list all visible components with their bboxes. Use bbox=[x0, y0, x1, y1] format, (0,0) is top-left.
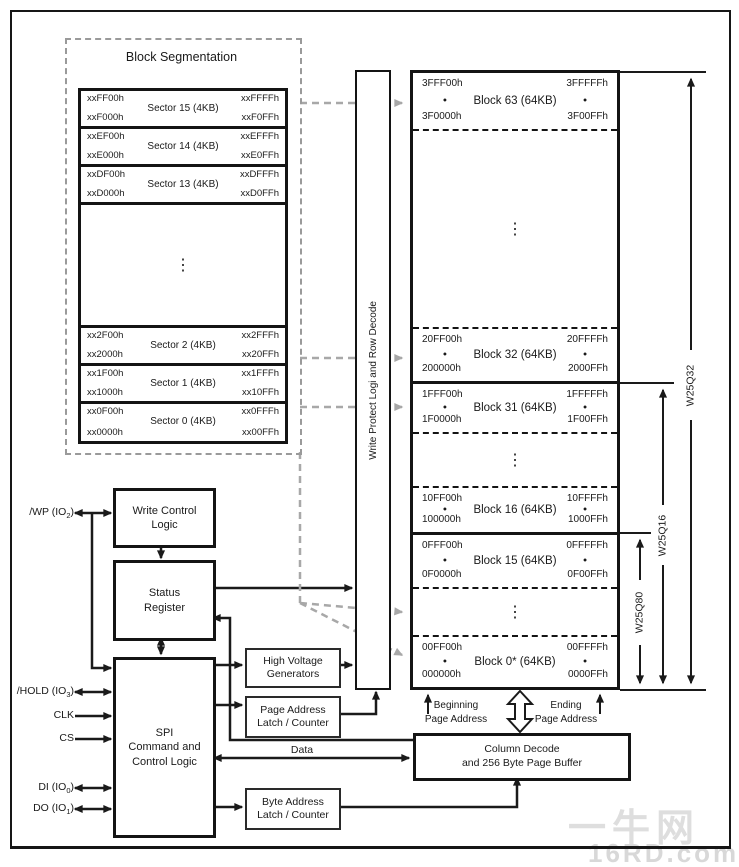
sector-row-14: xxEF00h xxEFFFh Sector 14 (4KB) xxE000h … bbox=[81, 129, 285, 167]
sector-row-15: xxFF00h xxFFFFh Sector 15 (4KB) xxF000h … bbox=[81, 91, 285, 129]
page-ellipsis-dot: • bbox=[583, 554, 587, 566]
array-ellipsis: ⋮ bbox=[413, 589, 617, 637]
memory-array: 3FFF00h 3FFFFFh Block 63 (64KB) • • 3F00… bbox=[410, 70, 620, 690]
page-ellipsis-dot: • bbox=[443, 348, 447, 360]
block-addr: 000000h bbox=[422, 669, 461, 680]
sector-addr: xx00FFh bbox=[242, 427, 279, 438]
block-addr: 10FF00h bbox=[422, 493, 462, 504]
ending-page-address-label: Ending Page Address bbox=[525, 699, 607, 726]
block-addr: 0FFF00h bbox=[422, 540, 463, 551]
hold-pin-label: /HOLD (IO3) bbox=[16, 685, 74, 699]
sector-row-13: xxDF00h xxDFFFh Sector 13 (4KB) xxD000h … bbox=[81, 167, 285, 205]
page-ellipsis-dot: • bbox=[583, 94, 587, 106]
page-address-latch-box: Page Address Latch / Counter bbox=[245, 696, 341, 738]
block-row-31: 1FFF00h 1FFFFFh Block 31 (64KB) • • 1F00… bbox=[413, 384, 617, 434]
sector-row-1: xx1F00h xx1FFFh Sector 1 (4KB) xx1000h x… bbox=[81, 366, 285, 404]
w25q16-range-label: W25Q16 bbox=[657, 506, 670, 566]
block-addr: 1F0000h bbox=[422, 414, 461, 425]
block-addr: 20FFFFh bbox=[567, 334, 608, 345]
block-addr: 2000FFh bbox=[568, 363, 608, 374]
page-ellipsis-dot: • bbox=[583, 401, 587, 413]
sector-addr: xxD000h bbox=[87, 188, 125, 199]
page-ellipsis-dot: • bbox=[443, 94, 447, 106]
sector-name: Sector 0 (4KB) bbox=[81, 416, 285, 427]
block-row-0: 00FF00h 00FFFFh Block 0* (64KB) • • 0000… bbox=[413, 637, 617, 687]
block-addr: 1F00FFh bbox=[567, 414, 608, 425]
block-addr: 0F00FFh bbox=[567, 569, 608, 580]
block-addr: 1FFFFFh bbox=[566, 389, 608, 400]
sector-addr: xxD0FFh bbox=[240, 188, 279, 199]
sector-row-2: xx2F00h xx2FFFh Sector 2 (4KB) xx2000h x… bbox=[81, 328, 285, 366]
block-addr: 10FFFFh bbox=[567, 493, 608, 504]
sector-addr: xx1000h bbox=[87, 387, 123, 398]
wp-to-spi-wire bbox=[92, 513, 111, 668]
spi-command-control-box: SPI Command and Control Logic bbox=[113, 657, 216, 838]
sector-addr: xxF0FFh bbox=[242, 112, 279, 123]
block-row-32: 20FF00h 20FFFFh Block 32 (64KB) • • 2000… bbox=[413, 329, 617, 384]
block-addr: 3F00FFh bbox=[567, 111, 608, 122]
block-segmentation-title: Block Segmentation bbox=[65, 50, 298, 64]
page-ellipsis-dot: • bbox=[443, 554, 447, 566]
sector-row-0: xx0F00h xx0FFFh Sector 0 (4KB) xx0000h x… bbox=[81, 404, 285, 441]
write-protect-row-decode-label: Write Protect Logi and Row Decode bbox=[368, 301, 379, 460]
block-row-16: 10FF00h 10FFFFh Block 16 (64KB) • • 1000… bbox=[413, 488, 617, 535]
block-addr: 100000h bbox=[422, 514, 461, 525]
block-addr: 20FF00h bbox=[422, 334, 462, 345]
block-addr: 0000FFh bbox=[568, 669, 608, 680]
status-register-box: Status Register bbox=[113, 560, 216, 641]
page-ellipsis-dot: • bbox=[583, 348, 587, 360]
byte-to-buffer-wire bbox=[337, 778, 517, 807]
sector-addr: xx10FFh bbox=[242, 387, 279, 398]
page-ellipsis-dot: • bbox=[443, 655, 447, 667]
byte-address-latch-box: Byte Address Latch / Counter bbox=[245, 788, 341, 830]
page-ellipsis-dot: • bbox=[443, 401, 447, 413]
do-pin-label: DO (IO1) bbox=[16, 802, 74, 816]
w25q80-range-label: W25Q80 bbox=[634, 583, 647, 643]
beginning-page-address-label: Beginning Page Address bbox=[412, 699, 500, 726]
block-addr: 00FF00h bbox=[422, 642, 462, 653]
array-ellipsis: ⋮ bbox=[413, 434, 617, 488]
block-addr: 3FFF00h bbox=[422, 78, 463, 89]
sector-addr: xx20FFh bbox=[242, 349, 279, 360]
page-ellipsis-dot: • bbox=[583, 655, 587, 667]
page-to-bar-wire bbox=[337, 692, 376, 714]
block-addr: 1FFF00h bbox=[422, 389, 463, 400]
array-ellipsis: ⋮ bbox=[413, 131, 617, 329]
sector-ellipsis: ⋮ bbox=[81, 205, 285, 328]
block-addr: 0FFFFFh bbox=[566, 540, 608, 551]
sector-addr: xxF000h bbox=[87, 112, 123, 123]
sector-addr: xx2000h bbox=[87, 349, 123, 360]
clk-pin-label: CLK bbox=[16, 709, 74, 723]
write-protect-row-decode-bar: Write Protect Logi and Row Decode bbox=[355, 70, 391, 690]
block-addr: 200000h bbox=[422, 363, 461, 374]
high-voltage-generators-box: High Voltage Generators bbox=[245, 648, 341, 688]
sector-table: xxFF00h xxFFFFh Sector 15 (4KB) xxF000h … bbox=[78, 88, 288, 444]
block-row-63: 3FFF00h 3FFFFFh Block 63 (64KB) • • 3F00… bbox=[413, 73, 617, 131]
write-control-logic-box: Write Control Logic bbox=[113, 488, 216, 548]
sector-addr: xx0000h bbox=[87, 427, 123, 438]
data-bus-label: Data bbox=[262, 743, 342, 757]
cs-pin-label: CS bbox=[16, 732, 74, 746]
block-row-15: 0FFF00h 0FFFFFh Block 15 (64KB) • • 0F00… bbox=[413, 535, 617, 589]
block-addr: 3F0000h bbox=[422, 111, 461, 122]
block-addr: 00FFFFh bbox=[567, 642, 608, 653]
block-addr: 3FFFFFh bbox=[566, 78, 608, 89]
flash-memory-block-diagram: Block Segmentation xxFF00h xxFFFFh Secto… bbox=[0, 0, 739, 867]
w25q32-range-label: W25Q32 bbox=[685, 356, 698, 416]
wp-pin-label: /WP (IO2) bbox=[16, 506, 74, 520]
column-decode-page-buffer-box: Column Decode and 256 Byte Page Buffer bbox=[413, 733, 631, 781]
block-addr: 0F0000h bbox=[422, 569, 461, 580]
sector-addr: xxE000h bbox=[87, 150, 124, 161]
watermark-url: 16RD.com bbox=[588, 838, 739, 867]
block-addr: 1000FFh bbox=[568, 514, 608, 525]
di-pin-label: DI (IO0) bbox=[16, 781, 74, 795]
sector-addr: xxE0FFh bbox=[241, 150, 279, 161]
